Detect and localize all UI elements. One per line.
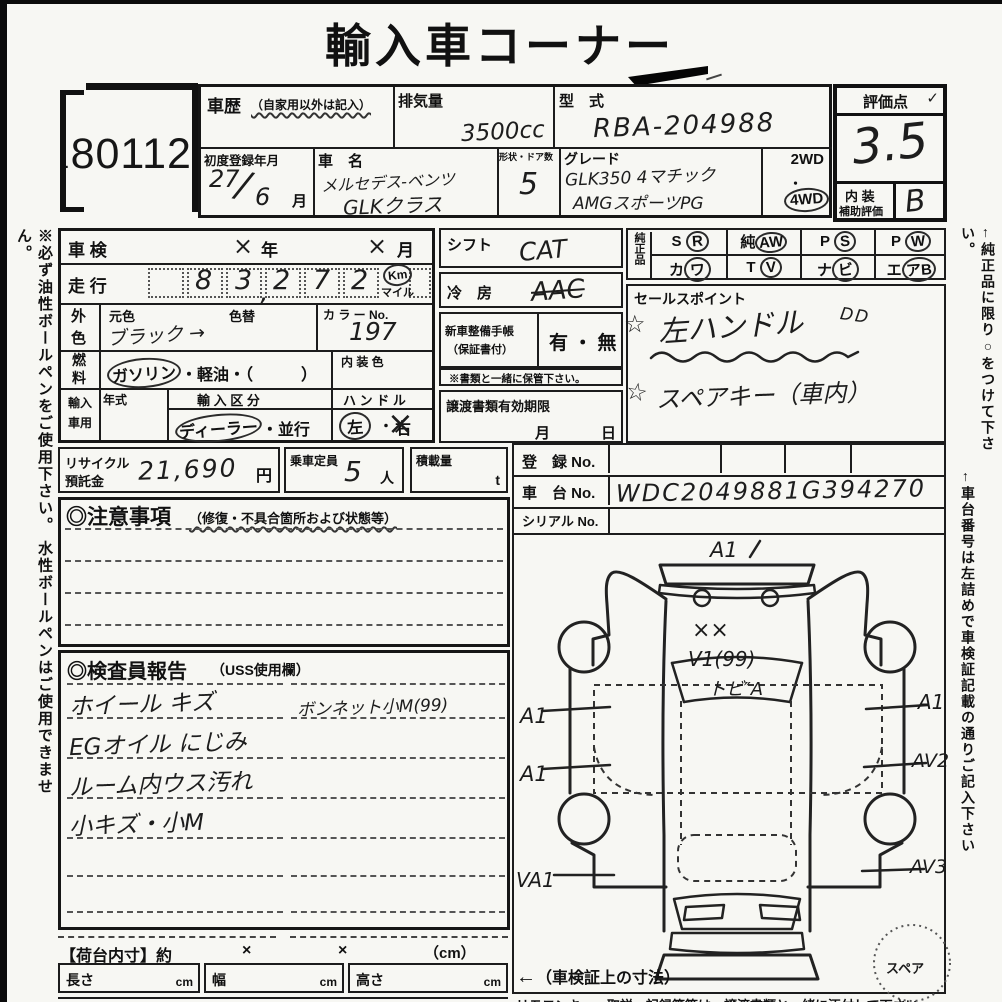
diagram-hood-code: V1(99) — [688, 647, 755, 671]
diagram-note-left-2: A1 — [518, 762, 548, 786]
auction-sheet: 輸入車コーナー ※必ず油性ボールペンをご使用下さい。 水性ボールペンはご使用でき… — [0, 0, 1002, 1002]
sales-line-1b: DD — [839, 304, 872, 328]
left-arrow-icon: ← — [516, 966, 536, 988]
diagram-note-right-1: A1 — [916, 690, 944, 714]
dims-dashed-line-1 — [58, 936, 276, 938]
cert-dims-note: ←（車検証上の寸法） — [516, 964, 680, 989]
model-code-value: RBA-204988 — [593, 108, 776, 144]
inspector-report-box: ◎検査員報告 （USS使用欄） ホイール キズ EGオイル にじみ ルーム内ウス… — [58, 650, 510, 930]
dealer-circled: ディーラー — [174, 411, 263, 445]
model-year-cell: 年式 — [99, 388, 169, 440]
shape-doors-cell: 形状・ドア数 5 — [497, 147, 561, 215]
report-line-r5 — [291, 837, 505, 839]
report-line-l6 — [67, 875, 283, 877]
height-label: 高さ — [356, 970, 384, 990]
displacement-value: 3500cc — [461, 117, 546, 147]
serial-divider — [608, 507, 610, 533]
genuine-cell-ps: P S — [802, 231, 874, 252]
score-value: 3.5 — [834, 111, 945, 178]
lot-number: .80112 — [64, 130, 192, 179]
height-box: 高さ cm — [348, 963, 508, 993]
capacity-value: 5 — [344, 455, 362, 488]
keep-note: ※書類と一緒に保管下さい。 — [449, 371, 586, 386]
car-damage-diagram: A1 ×× V1(99) トビ″A A1 A1 VA1 A1 AV2 AV3 ス… — [514, 535, 944, 991]
page-title: 輸入車コーナー — [290, 10, 710, 76]
genuine-cell-navi: ナビ — [802, 257, 874, 282]
shape-doors-value: 5 — [519, 167, 538, 202]
diagram-region: A1 ×× V1(99) トビ″A A1 A1 VA1 A1 AV2 AV3 ス… — [512, 535, 946, 994]
report-line-r6 — [291, 875, 505, 877]
genuine-label: 純正品 — [631, 232, 652, 278]
history-cell: 車歴 （自家用以外は記入） — [201, 87, 395, 149]
ac-value: AAC — [530, 274, 586, 308]
mileage-mile: マイル — [381, 284, 414, 300]
inspector-title: ◎検査員報告 — [67, 655, 187, 684]
fuel-label-cell: 燃 料 — [61, 350, 101, 388]
intcolor-divider — [331, 350, 333, 388]
interior-color-label: 内 装 色 — [341, 353, 384, 370]
drive-cell: 2WD ・ 4WD — [761, 147, 832, 215]
recycle-box: リサイクル 預託金 21,690 円 — [58, 447, 280, 493]
colorno-value: 197 — [349, 317, 397, 346]
dims-x2: × — [338, 942, 347, 960]
shaken-label: 車 検 — [68, 236, 107, 261]
recycle-unit: 円 — [256, 462, 272, 486]
right-margin-note-genuine: ←純正品に限り○をつけて下さい。 — [958, 226, 998, 481]
import-row: 輸入 車用 年式 輸 入 区 分 ディーラー・並行 ハ ン ド ル 左 ・ — [61, 388, 432, 440]
diagram-note-right-2: AV2 — [910, 750, 949, 772]
first-reg-den: 6 — [255, 183, 270, 211]
interior-label-cell: 内 装 補助評価 — [837, 184, 896, 221]
chassis-no-value: WDC2049881G394270 — [616, 474, 927, 507]
report-note-4: 小キズ・小M — [68, 803, 204, 842]
handle-left: 左 — [347, 419, 364, 437]
dims-unit: （cm） — [424, 942, 476, 963]
spare-label: スペア — [886, 961, 924, 976]
genuine-cell-airbag: エアB — [876, 257, 946, 282]
length-unit: cm — [176, 975, 193, 989]
grade-line2: AMGスポーツPG — [573, 189, 704, 214]
first-reg-unit: 月 — [292, 190, 307, 211]
report-line-r1 — [291, 683, 505, 685]
interior-label-2: 補助評価 — [839, 203, 883, 219]
model-code-label: 型 式 — [559, 90, 604, 111]
ac-box: 冷 房 AAC — [439, 272, 623, 308]
report-note-1: ホイール キズ — [68, 682, 214, 721]
import-division-label: 輸 入 区 分 — [197, 390, 260, 409]
service-book-label-1: 新車整備手帳 — [445, 323, 514, 339]
load-box: 積載量 t — [410, 447, 508, 493]
handle-cell: ハ ン ド ル 左 ・ 右 × — [331, 388, 432, 440]
grade-line1: GLK350 4マチック — [565, 160, 716, 190]
registration-block: 登 録 No. 車 台 No. WDC2049881G394270 シリアル N… — [512, 443, 946, 535]
bottom-cut-boxes — [58, 997, 508, 1002]
score-box: 評価点 ✓ 3.5 内 装 補助評価 B — [833, 84, 947, 222]
shift-label: シフト — [447, 234, 492, 255]
history-label: 車歴 — [207, 92, 241, 117]
color-label-2: 色 — [71, 327, 86, 348]
change-color-label: 色替 — [229, 306, 255, 325]
fuel-gasoline-circled: ガソリン — [106, 355, 182, 390]
mileage-label: 走 行 — [68, 272, 107, 297]
interior-grade-row: 内 装 補助評価 B — [837, 181, 943, 221]
reg-no-label: 登 録 No. — [522, 451, 595, 472]
keep-note-strip: ※書類と一緒に保管下さい。 — [439, 368, 623, 386]
reg-no-row: 登 録 No. — [514, 445, 944, 477]
load-label: 積載量 — [416, 452, 452, 469]
dims-dashed-line-2 — [290, 936, 508, 938]
dims-x1: × — [242, 942, 251, 960]
genuine-row-divider — [652, 254, 944, 256]
transfer-label: 譲渡書類有効期限 — [446, 396, 550, 415]
mileage-box-1 — [148, 268, 184, 298]
capacity-unit: 人 — [380, 468, 394, 488]
grade-cell: グレード GLK350 4マチック AMGスポーツPG — [559, 147, 763, 215]
cautions-box: ◎注意事項 （修復・不具合箇所および状態等） — [58, 497, 510, 647]
sales-star-2: ☆ — [624, 376, 650, 407]
drive-4wd: 4WD — [789, 190, 823, 209]
handle-underline — [331, 408, 432, 410]
service-book-value: 有 ・ 無 — [549, 328, 617, 355]
genuine-cell-tv: T V — [728, 257, 800, 278]
color-row: 外 色 元色 色替 ブラック → カ ラ ー No. 197 — [61, 303, 432, 352]
fuel-row: 燃 料 ガソリン・軽油・（ ） 内 装 色 — [61, 350, 432, 390]
recycle-label-2: 預託金 — [65, 471, 104, 490]
report-note-bonnet: ボンネット小M(99) — [297, 690, 449, 720]
diagram-glass-code: トビ″A — [708, 679, 763, 700]
report-line-r3 — [291, 757, 505, 759]
chassis-divider — [608, 475, 610, 505]
recycle-label-1: リサイクル — [65, 453, 129, 472]
drive-2wd: 2WD — [791, 151, 824, 168]
shape-doors-label: 形状・ドア数 — [499, 150, 553, 163]
sales-line-2: スペアキー（車内） — [655, 372, 870, 414]
diagram-note-right-3: AV3 — [908, 856, 947, 878]
reg-divider-1 — [720, 445, 722, 473]
import-label-2: 車用 — [68, 414, 92, 431]
import-division-cell: 輸 入 区 分 ディーラー・並行 — [167, 388, 333, 440]
height-unit: cm — [484, 975, 501, 989]
report-note-3: ルーム内ウス汚れ — [68, 762, 252, 802]
history-note: （自家用以外は記入） — [251, 96, 371, 113]
reg-divider-2 — [784, 445, 786, 473]
service-book-label-2: （保証書付） — [447, 341, 513, 357]
mileage-digit-3: 2 — [273, 265, 290, 296]
lot-bracket-stub-top — [60, 90, 84, 95]
fuel-value: ガソリン・軽油・（ ） — [107, 358, 317, 388]
shaken-x-month: × — [367, 232, 387, 260]
diagram-hood-marks: ×× — [692, 618, 729, 643]
car-name-cell: 車 名 メルセデス-ベンツ GLKクラス — [313, 147, 499, 215]
import-label-cell: 輸入 車用 — [61, 388, 101, 440]
cautions-subtitle: （修復・不具合箇所および状態等） — [189, 508, 397, 527]
left-margin-note: ※必ず油性ボールペンをご使用下さい。 水性ボールペンはご使用できません。 — [13, 228, 55, 803]
shaken-row: 車 検 × 年 × 月 — [61, 231, 432, 265]
cautions-line-2 — [65, 560, 503, 562]
right-margin-note-chassis: ←車台番号は左詰めで車検証記載の通りご記入下さい — [958, 470, 978, 890]
transfer-day: 日 — [601, 422, 616, 443]
diagram-note-left-3: VA1 — [516, 868, 555, 892]
diagram-note-top: A1 — [708, 538, 738, 562]
sales-points-box: セールスポイント ☆ 左ハンドル DD ☆ スペアキー（車内） — [626, 284, 946, 443]
mileage-row: 走 行 8 3 , 2 7 2 Km マイル — [61, 263, 432, 305]
report-line-l7 — [67, 911, 283, 913]
genuine-cell-pw: P W — [876, 231, 946, 252]
report-line-r4 — [291, 797, 505, 799]
chassis-no-row: 車 台 No. WDC2049881G394270 — [514, 475, 944, 509]
model-year-label: 年式 — [103, 391, 127, 408]
colorno-divider — [316, 303, 318, 350]
shift-value: CAT — [518, 234, 568, 267]
recycle-value: 21,690 — [138, 453, 238, 485]
displacement-cell: 排気量 3500cc — [393, 87, 555, 149]
mileage-digit-2: 3 — [235, 265, 252, 296]
chassis-no-label: 車 台 No. — [522, 482, 595, 503]
serial-no-label: シリアル No. — [522, 511, 598, 530]
vehicle-detail-table: 車 検 × 年 × 月 走 行 8 3 , 2 7 2 Km マイル — [58, 228, 435, 443]
inspector-subtitle: （USS使用欄） — [211, 660, 310, 680]
report-line-r7 — [291, 911, 505, 913]
width-box: 幅 cm — [204, 963, 344, 993]
handle-left-circled: 左 — [338, 411, 372, 441]
cautions-line-4 — [65, 624, 503, 626]
sales-line-1: 左ハンドル — [657, 299, 805, 351]
reg-divider-0 — [608, 445, 610, 473]
genuine-cell-sr: S R — [654, 231, 726, 252]
sales-squiggle — [648, 348, 863, 366]
import-label-1: 輸入 — [68, 394, 92, 411]
ac-label: 冷 房 — [447, 282, 492, 303]
transfer-month: 月 — [535, 422, 550, 443]
import-division-value: ディーラー・並行 — [175, 414, 310, 442]
length-box: 長さ cm — [58, 963, 200, 993]
lot-bracket-stub-bottom — [60, 207, 84, 212]
sales-star-1: ☆ — [624, 310, 646, 338]
base-color-value: ブラック → — [106, 318, 206, 352]
genuine-cell-aw: 純AW — [728, 231, 800, 253]
capacity-label: 乗車定員 — [290, 452, 338, 469]
lot-bracket-top — [86, 83, 198, 90]
displacement-label: 排気量 — [398, 90, 443, 111]
width-label: 幅 — [212, 970, 226, 990]
genuine-cell-leather: カワ — [654, 257, 726, 282]
model-code-cell: 型 式 RBA-204988 — [553, 87, 832, 149]
shaken-year: 年 — [261, 236, 278, 261]
first-reg-cell: 初度登録年月 27 / 6 月 — [201, 147, 315, 215]
service-book-box: 新車整備手帳 （保証書付） 有 ・ 無 — [439, 312, 623, 368]
cautions-title: ◎注意事項 — [66, 501, 171, 531]
shaken-month: 月 — [397, 236, 414, 261]
width-unit: cm — [320, 975, 337, 989]
bottom-cut-note: リモコンキー・取説・記録簿等は、譲渡書類と一緒に添付して下さい — [516, 995, 946, 1002]
color-label-cell: 外 色 — [61, 303, 101, 350]
length-label: 長さ — [66, 970, 94, 990]
shift-box: シフト CAT — [439, 228, 623, 268]
handle-right-x: × — [387, 404, 414, 442]
scan-edge-top — [0, 0, 1002, 4]
mileage-digit-4: 7 — [313, 265, 330, 296]
header-table: 車歴 （自家用以外は記入） 排気量 3500cc 型 式 RBA-204988 … — [198, 84, 832, 218]
cautions-line-1 — [65, 528, 503, 530]
score-label: 評価点 — [863, 91, 908, 112]
transfer-docs-box: 譲渡書類有効期限 月 日 — [439, 390, 623, 443]
genuine-parts-grid: 純正品 S R 純AW P S P W カワ T V ナビ エアB — [626, 228, 946, 280]
capacity-box: 乗車定員 5 人 — [284, 447, 404, 493]
car-name-line2: GLKクラス — [343, 188, 443, 220]
shaken-x-year: × — [233, 232, 253, 260]
report-note-2: EGオイル にじみ — [68, 722, 247, 762]
car-name-label: 車 名 — [318, 150, 363, 171]
fuel-label-1: 燃 — [72, 350, 86, 370]
reg-divider-3 — [850, 445, 852, 473]
division-underline — [167, 408, 331, 410]
mileage-km: Km — [387, 267, 408, 283]
interior-grade-value: B — [903, 183, 927, 220]
score-check: ✓ — [926, 89, 939, 107]
fuel-label-2: 料 — [72, 368, 86, 388]
service-book-label-cell: 新車整備手帳 （保証書付） — [441, 314, 539, 366]
serial-no-row: シリアル No. — [514, 507, 944, 533]
load-unit: t — [495, 472, 500, 488]
diagram-note-left-1: A1 — [518, 704, 548, 728]
color-label-1: 外 — [71, 305, 86, 326]
mileage-digit-5: 2 — [351, 265, 368, 296]
cautions-line-3 — [65, 592, 503, 594]
scan-edge-left — [0, 0, 7, 1002]
mileage-digit-1: 8 — [195, 265, 212, 296]
